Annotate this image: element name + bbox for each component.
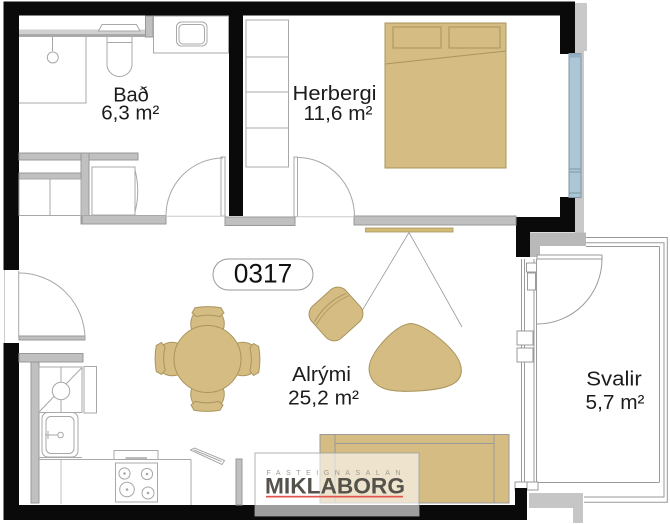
svg-text:5,7 m²: 5,7 m² [586, 392, 645, 414]
svg-text:Alrými: Alrými [292, 364, 351, 386]
svg-text:0317: 0317 [234, 259, 293, 289]
svg-text:11,6 m²: 11,6 m² [304, 103, 373, 125]
svg-text:MIKLABORG: MIKLABORG [265, 474, 405, 499]
svg-text:Herbergi: Herbergi [293, 83, 377, 105]
svg-text:25,2 m²: 25,2 m² [288, 387, 359, 409]
svg-text:Svalir: Svalir [586, 369, 642, 391]
svg-text:6,3 m²: 6,3 m² [101, 103, 159, 125]
